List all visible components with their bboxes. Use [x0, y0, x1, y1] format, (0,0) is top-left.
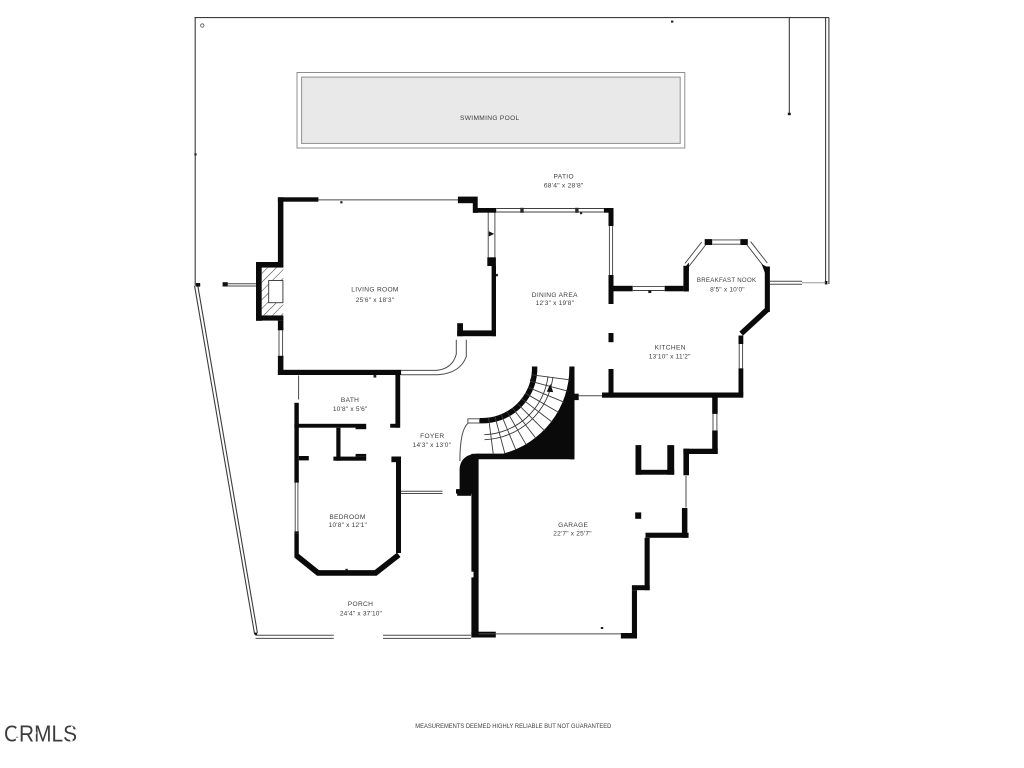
svg-text:10'8" x 5'6": 10'8" x 5'6": [333, 406, 368, 413]
svg-text:DINING AREA: DINING AREA: [532, 292, 578, 299]
svg-text:MEASUREMENTS DEEMED HIGHLY REL: MEASUREMENTS DEEMED HIGHLY RELIABLE BUT …: [415, 724, 612, 730]
svg-text:PATIO: PATIO: [553, 173, 573, 180]
svg-text:22'7" x 25'7": 22'7" x 25'7": [553, 531, 592, 538]
svg-text:12'3" x 19'8": 12'3" x 19'8": [536, 300, 575, 307]
svg-text:LIVING ROOM: LIVING ROOM: [351, 286, 398, 293]
svg-text:BEDROOM: BEDROOM: [329, 514, 365, 521]
svg-text:68'4" x 28'8": 68'4" x 28'8": [544, 182, 584, 189]
svg-text:KITCHEN: KITCHEN: [655, 345, 686, 352]
svg-text:13'10" x 11'2": 13'10" x 11'2": [649, 353, 691, 360]
svg-text:24'4" x 37'10": 24'4" x 37'10": [340, 610, 383, 617]
svg-text:FOYER: FOYER: [420, 433, 444, 440]
svg-text:8'5" x 10'0": 8'5" x 10'0": [710, 286, 745, 293]
svg-text:BREAKFAST NOOK: BREAKFAST NOOK: [697, 277, 757, 284]
svg-text:25'6" x 18'3": 25'6" x 18'3": [356, 297, 395, 304]
svg-text:GARAGE: GARAGE: [558, 522, 588, 529]
svg-text:14'3" x 13'0": 14'3" x 13'0": [413, 442, 452, 449]
svg-text:10'8" x 12'1": 10'8" x 12'1": [329, 522, 368, 529]
svg-text:SWIMMING POOL: SWIMMING POOL: [460, 115, 519, 122]
svg-text:PORCH: PORCH: [348, 601, 373, 608]
svg-text:CRMLS: CRMLS: [4, 721, 77, 747]
svg-text:BATH: BATH: [341, 397, 359, 404]
